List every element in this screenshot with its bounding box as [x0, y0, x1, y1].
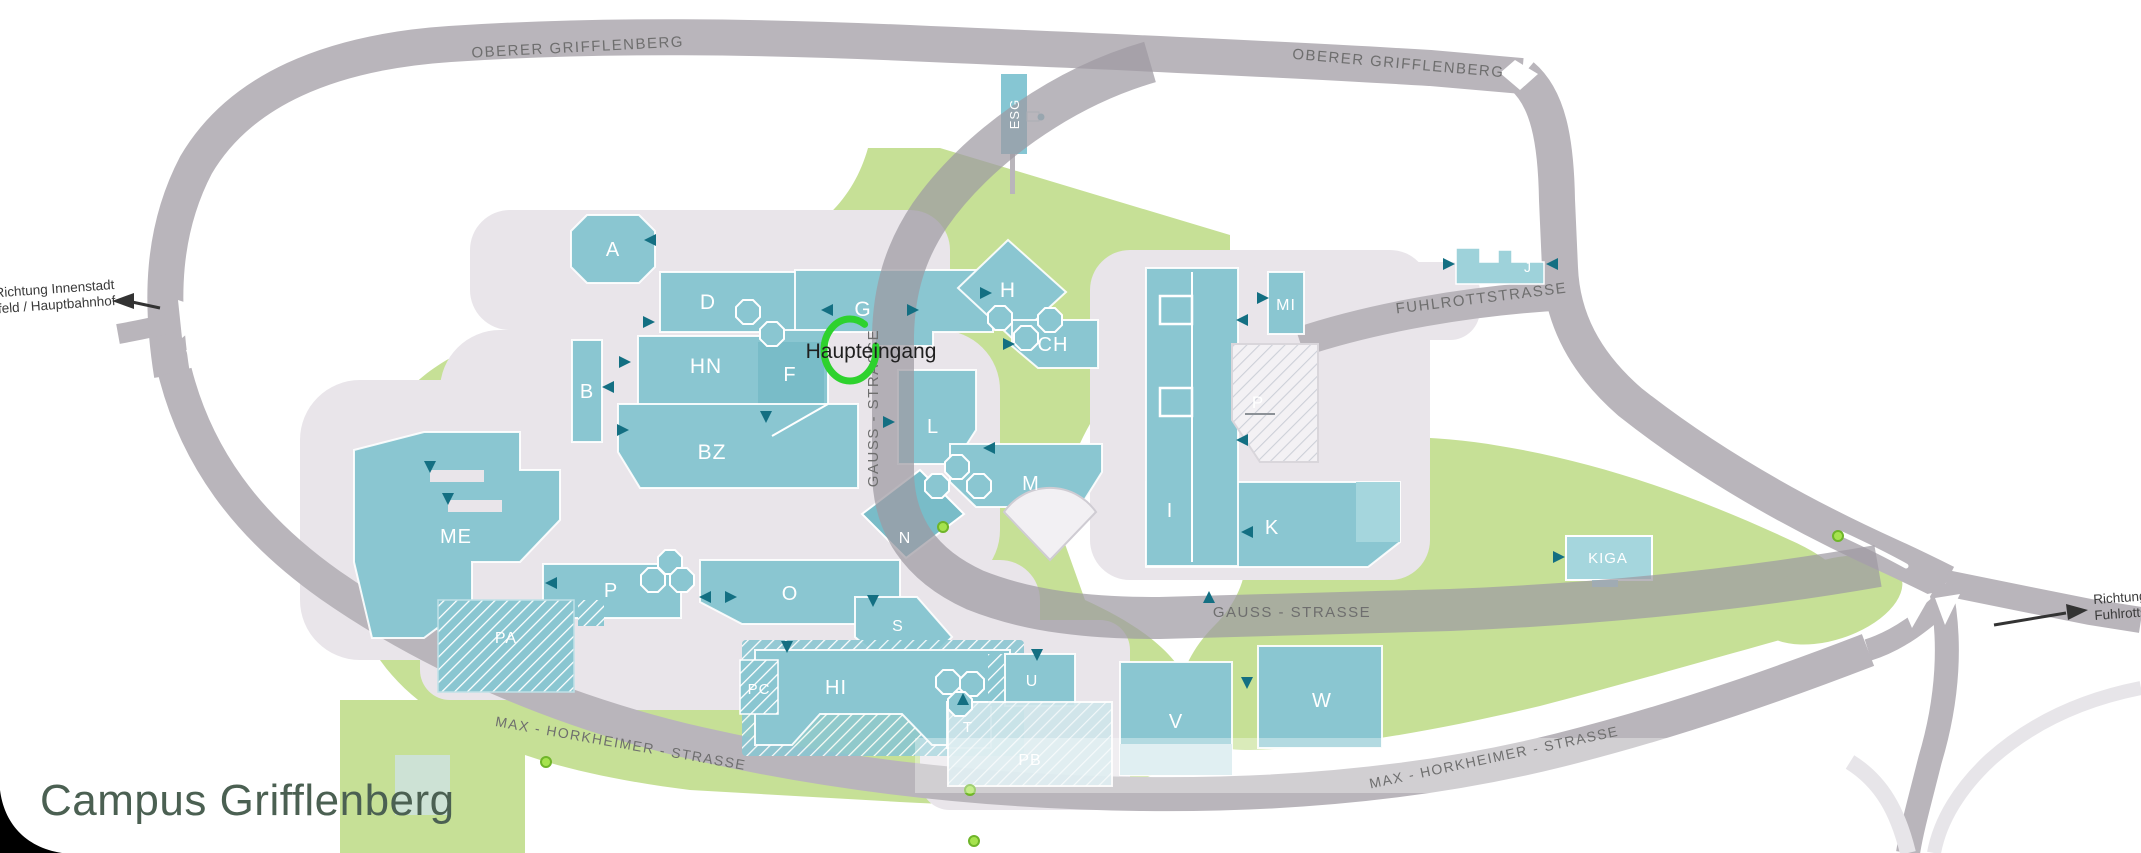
building-label-I: I — [1167, 500, 1174, 522]
building-label-ME: ME — [440, 526, 472, 548]
building-label-KIGA: KIGA — [1588, 550, 1628, 567]
building-label-BZ: BZ — [698, 441, 727, 464]
octagon-pavilion-shape — [1038, 308, 1062, 332]
direction-east: Richtung Fuhlrottst — [2093, 588, 2141, 623]
building-label-PA: PA — [495, 630, 517, 647]
octagon-pavilion-shape — [736, 300, 760, 324]
building-label-P: P — [604, 580, 618, 602]
building-label-T: T — [963, 719, 973, 736]
direction-east-line1: Richtung — [2093, 588, 2141, 607]
building-label-O: O — [782, 583, 799, 605]
building-label-L: L — [927, 416, 939, 438]
main-entrance-label: Haupteingang — [806, 340, 937, 363]
bus-stop-icon — [938, 522, 948, 532]
campus-map-page: OBERER GRIFFLENBERG OBERER GRIFFLENBERG … — [0, 0, 2141, 853]
building-BZ-shape — [618, 404, 858, 488]
map-title: Campus Grifflenberg — [40, 776, 455, 825]
building-label-K: K — [1265, 517, 1279, 539]
building-U-shape — [1005, 654, 1075, 706]
campus-map-image: OBERER GRIFFLENBERG OBERER GRIFFLENBERG … — [0, 0, 2141, 853]
octagon-pavilion-shape — [988, 306, 1012, 330]
building-label-CH: CH — [1038, 334, 1069, 356]
octagon-pavilion-shape — [945, 455, 969, 479]
building-label-N: N — [899, 530, 912, 547]
building-label-HI: HI — [825, 677, 847, 699]
octagon-pavilion-shape — [925, 474, 949, 498]
octagon-pavilion-shape — [760, 322, 784, 346]
building-label-W: W — [1312, 690, 1332, 712]
octagon-pavilion-shape — [936, 670, 960, 694]
building-label-S: S — [892, 618, 904, 635]
building-label-A: A — [606, 239, 620, 261]
octagon-pavilion-shape — [670, 568, 694, 592]
building-label-H: H — [1000, 279, 1016, 302]
octagon-pavilion-shape — [967, 474, 991, 498]
building-label-D: D — [700, 291, 716, 314]
building-label-M: M — [1022, 473, 1040, 495]
building-label-V: V — [1169, 711, 1183, 733]
street-label-gauss-strasse-horizontal: GAUSS - STRASSE — [1213, 604, 1371, 621]
octagon-pavilion-shape — [641, 568, 665, 592]
building-label-PC: PC — [748, 681, 771, 698]
bus-stop-icon — [969, 836, 979, 846]
building-label-MI: MI — [1276, 297, 1296, 314]
bus-stop-icon — [541, 757, 551, 767]
building-label-F: F — [783, 364, 796, 386]
octagon-pavilion-shape — [1014, 326, 1038, 350]
building-label-B: B — [580, 381, 594, 403]
building-label-U: U — [1026, 673, 1039, 690]
building-label-ESG: ESG — [1007, 99, 1022, 129]
parking-label-P: P — [1252, 393, 1264, 412]
building-label-HN: HN — [690, 355, 722, 378]
direction-east-line2: Fuhlrottst — [2094, 604, 2141, 623]
bus-stop-icon — [1833, 531, 1843, 541]
building-label-J: J — [1524, 259, 1532, 275]
building-label-PB: PB — [1018, 752, 1041, 769]
